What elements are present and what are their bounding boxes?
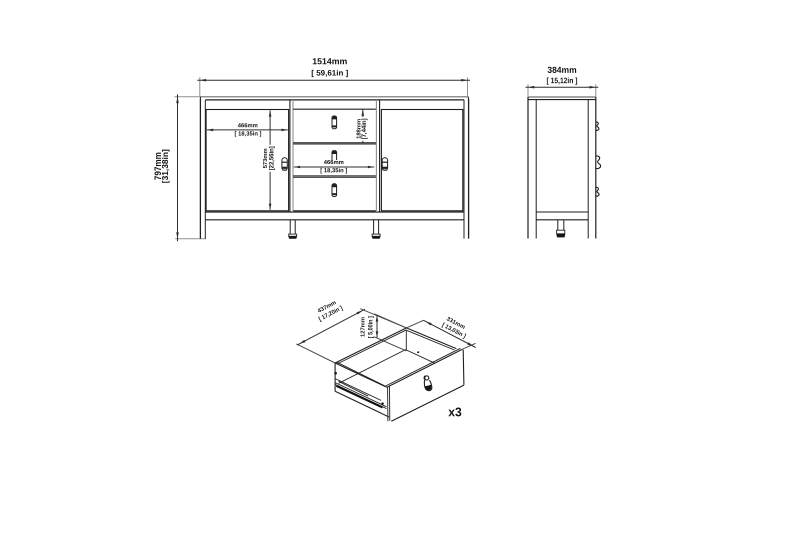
svg-text:1514mm: 1514mm <box>312 56 347 66</box>
svg-text:[7,44in]: [7,44in] <box>362 118 368 139</box>
svg-text:[ 59,61in ]: [ 59,61in ] <box>311 68 348 77</box>
svg-text:127mm: 127mm <box>361 317 367 337</box>
svg-text:466mm: 466mm <box>324 160 344 166</box>
svg-text:[ 15,12in ]: [ 15,12in ] <box>546 76 577 85</box>
svg-text:[ 18,35in ]: [ 18,35in ] <box>234 131 261 137</box>
svg-text:[ 18,35in ]: [ 18,35in ] <box>320 168 347 174</box>
svg-text:384mm: 384mm <box>547 65 576 75</box>
svg-text:[31,38in]: [31,38in] <box>161 149 170 183</box>
svg-text:466mm: 466mm <box>238 123 258 129</box>
svg-text:[22,56in]: [22,56in] <box>269 146 275 170</box>
svg-text:[ 5,00in ]: [ 5,00in ] <box>368 316 374 338</box>
svg-text:573mm: 573mm <box>263 148 269 168</box>
svg-text:x3: x3 <box>448 405 462 419</box>
